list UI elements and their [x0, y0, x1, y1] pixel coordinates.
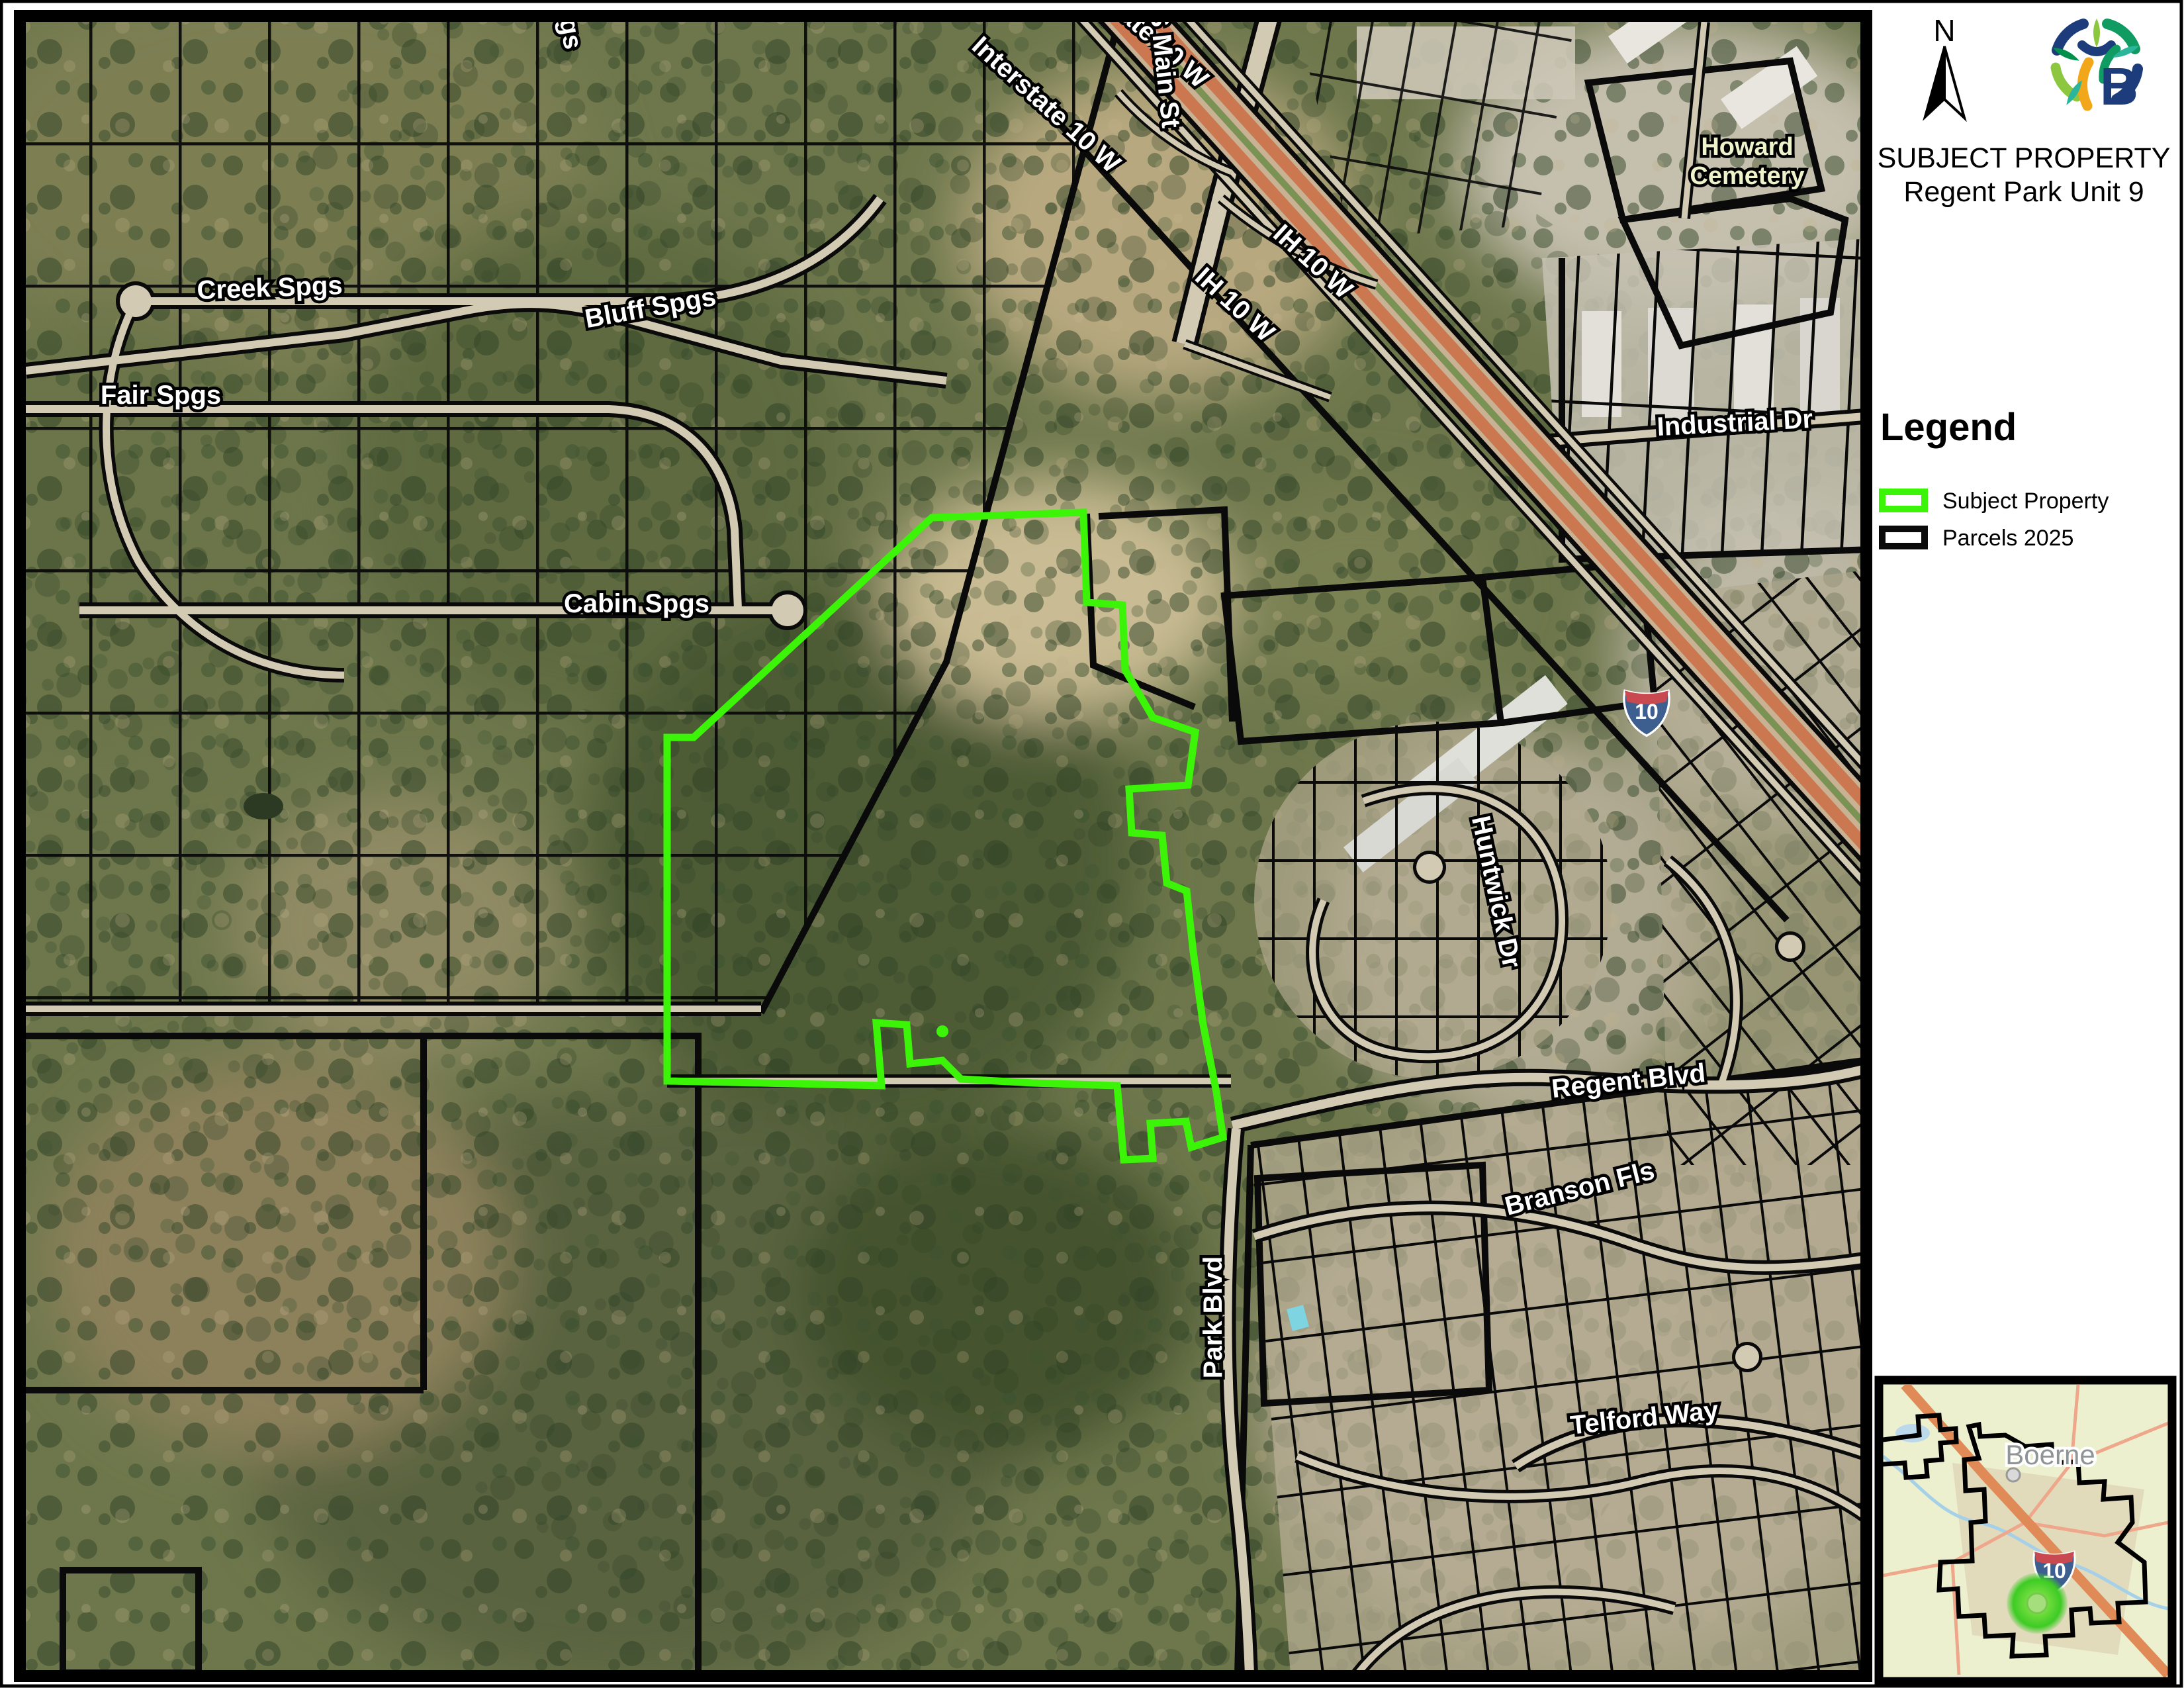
map-title-line1: SUBJECT PROPERTY — [1874, 142, 2173, 175]
road-label-cabin-spgs: Cabin Spgs — [564, 589, 709, 618]
north-arrow: N — [1925, 13, 1964, 118]
map-canvas: 10 Creek Spgs Fair Spgs Bluff Spgs Cabin… — [0, 0, 2184, 1688]
city-center-dot — [2007, 1468, 2020, 1481]
road-label-creek-spgs: Creek Spgs — [197, 271, 343, 305]
interstate-shield-number: 10 — [1635, 700, 1659, 724]
logo-letter: B — [2100, 57, 2138, 116]
road-label-fair-spgs: Fair Spgs — [101, 381, 221, 410]
city-logo-icon: B — [2052, 19, 2140, 116]
legend-swatch-subject-property — [1879, 489, 1928, 512]
map-document-page: 10 Creek Spgs Fair Spgs Bluff Spgs Cabin… — [0, 0, 2184, 1688]
place-label-cemetery: Cemetery — [1690, 162, 1804, 190]
map-title-line2: Regent Park Unit 9 — [1874, 176, 2173, 209]
road-label-park-blvd: Park Blvd — [1199, 1256, 1228, 1379]
inset-locator-map: Boerne 10 — [1883, 1385, 2168, 1677]
main-map-area: 10 Creek Spgs Fair Spgs Bluff Spgs Cabin… — [0, 0, 2177, 1688]
legend-heading: Legend — [1880, 405, 2017, 449]
pond — [244, 793, 283, 820]
legend-label-parcels-2025: Parcels 2025 — [1942, 526, 2073, 551]
north-arrow-n-label: N — [1933, 13, 1955, 48]
legend-swatch-parcels-2025 — [1879, 526, 1928, 549]
legend-label-subject-property: Subject Property — [1942, 489, 2109, 514]
place-label-howard: Howard — [1701, 133, 1793, 161]
inset-city-label: Boerne — [2005, 1439, 2095, 1470]
